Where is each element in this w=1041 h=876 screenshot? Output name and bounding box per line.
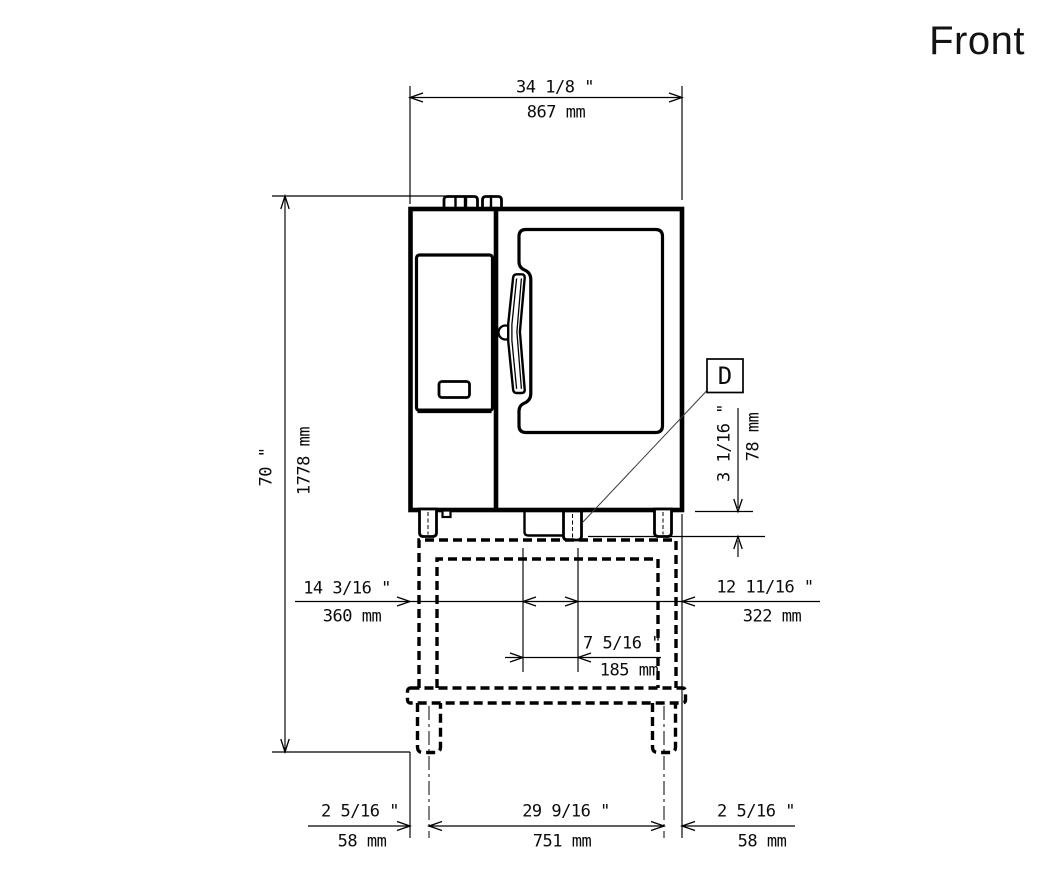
oven-feet [420,509,672,540]
dim-foot-left-offset-inches: 14 3/16 " [303,581,391,598]
dim-overall-height-mm: 1778 mm [297,427,314,495]
dim-foot-height-mm: 78 mm [746,413,763,462]
center-foot-recess [525,509,565,536]
control-panel [417,255,493,411]
dim-overall-height-inches: 70 " [259,448,276,487]
dim-foot-right-offset-mm: 322 mm [743,609,801,626]
dim-foot-center-width-inches: 7 5/16 " [583,636,661,653]
dim-leg-left-offset-mm: 58 mm [338,834,387,851]
dim-leg-spacing-mm: 751 mm [533,834,591,851]
view-title: Front [929,21,1025,61]
dim-overall-width-inches: 34 1/8 " [516,80,594,97]
dim-leg-left-offset-inches: 2 5/16 " [321,804,399,821]
dim-foot-right-offset-inches: 12 11/16 " [716,580,813,597]
dim-foot-left-offset-mm: 360 mm [323,609,381,626]
detail-marker-label: D [718,364,732,388]
technical-drawing-front-view: Front D 34 1/8 " 867 mm 70 " 1778 mm 3 1… [0,0,1041,876]
door-window [519,230,663,433]
dim-leg-right-offset-inches: 2 5/16 " [717,804,795,821]
drain-fitting [443,511,451,518]
feet-centerlines [428,512,663,538]
dim-leg-right-offset-mm: 58 mm [738,834,787,851]
dim-foot-height-inches: 3 1/16 " [717,404,734,482]
dim-leg-spacing-inches: 29 9/16 " [522,804,610,821]
stand-shelf [408,688,686,703]
dim-overall-width-mm: 867 mm [527,105,585,122]
dim-foot-center-width-mm: 185 mm [600,663,658,680]
drawing-linework [0,0,1041,876]
